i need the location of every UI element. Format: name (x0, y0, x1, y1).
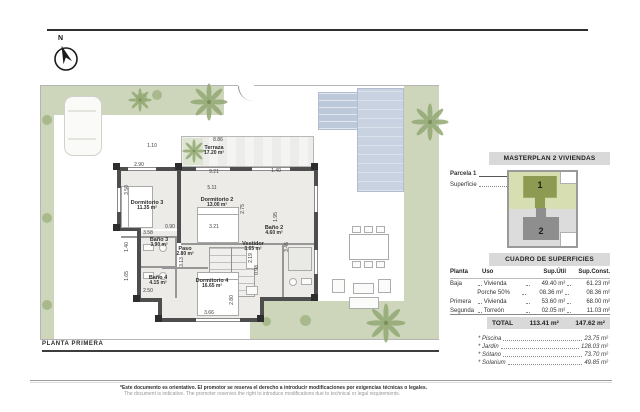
palm-tree-icon (411, 103, 449, 141)
chair (352, 226, 361, 233)
pool (357, 88, 404, 192)
room-label-bano4: Baño 4 4.15 m² (149, 275, 167, 287)
column (113, 224, 120, 231)
dimension-label: 3.66 (204, 310, 214, 316)
chair (364, 226, 373, 233)
siteplan-notch (560, 172, 576, 184)
car (64, 96, 102, 156)
bush-icon (42, 115, 52, 125)
plan-title: PLANTA PRIMERA (42, 341, 103, 347)
dimension-label: 0.98 (254, 265, 260, 275)
table-header-row: Planta Uso Sup.Útil Sup.Const. (450, 269, 610, 275)
dimension-label: 1.95 (273, 212, 279, 222)
armchair (378, 279, 391, 293)
window (314, 186, 318, 212)
sink (301, 278, 312, 285)
footer-divider (30, 380, 612, 381)
siteplan-diagram: 1 2 (507, 170, 578, 248)
palm-tree-icon (366, 303, 406, 343)
extra-row-piscina: * Piscina 23.75 m² (478, 336, 608, 342)
dimension-label: 3.50 (124, 185, 130, 195)
top-border-line (47, 29, 588, 31)
column (311, 163, 318, 170)
dimension-label: 3.13 (179, 257, 185, 267)
extra-row-sotano: * Sótano 73.70 m² (478, 352, 608, 358)
cuadro-header: CUADRO DE SUPERFICIES (489, 253, 610, 266)
table-rule (450, 314, 610, 315)
wall-segment (177, 167, 181, 243)
wall-segment (260, 297, 318, 301)
coffee-table (353, 283, 374, 294)
plan-sheet: N (0, 0, 640, 412)
column (175, 163, 182, 170)
bush-icon (42, 213, 52, 223)
sofa (349, 297, 379, 309)
dimension-label: 5.11 (207, 185, 216, 191)
bush-icon (300, 315, 311, 326)
table-row: Porche 50% 08.36 m² 08.36 m² (450, 290, 610, 296)
dimension-label: 1.65 (124, 271, 130, 281)
dimension-label: 0.90 (165, 224, 175, 230)
dimension-label: 3.45 (284, 242, 290, 252)
dimension-label: 3.58 (143, 230, 153, 236)
column (113, 163, 120, 170)
palm-tree-icon (182, 139, 206, 163)
room-label-bano2: Baño 2 4.60 m² (265, 225, 283, 237)
chair (352, 261, 361, 268)
partition (162, 267, 208, 269)
armchair (332, 279, 345, 293)
extra-row-solarium: * Solarium 49.85 m² (478, 360, 608, 366)
room-label-dormitorio4: Dormitorio 4 16.65 m² (196, 278, 229, 290)
column (311, 294, 318, 301)
total-const: 147.62 m² (575, 320, 605, 327)
superficie-label: Superficie (450, 182, 477, 188)
window (196, 318, 240, 322)
masterplan-header: MASTERPLAN 2 VIVIENDAS (489, 152, 610, 165)
table-row: Primera Vivienda 53.60 m² 68.00 m² (450, 299, 610, 305)
dimension-label: 1.40 (124, 242, 130, 252)
parcela-label: Parcela 1 (450, 171, 476, 177)
column (133, 295, 140, 302)
pool-shallow-end (318, 92, 358, 130)
window (314, 250, 318, 274)
wall-segment (137, 227, 141, 302)
column (155, 315, 162, 322)
chair (364, 261, 373, 268)
room-label-vestidor: Vestidor 3.65 m² (242, 241, 264, 253)
room-label-dormitorio2: Dormitorio 2 13.00 m² (201, 197, 234, 209)
car-windshield (68, 110, 96, 112)
room-label-terraza: Terraza 17.20 m² (204, 145, 224, 157)
plan-title-rule (42, 350, 439, 352)
dining-table (349, 234, 389, 260)
north-label: N (58, 35, 63, 42)
bush-icon (152, 90, 162, 100)
palm-tree-icon (190, 83, 228, 121)
dimension-label: 2.19 (248, 253, 254, 263)
north-arrow-icon (50, 42, 80, 72)
chair (376, 226, 385, 233)
extra-row-jardin: * Jardín 128.03 m² (478, 344, 608, 350)
dimension-label: 2.80 (229, 295, 235, 305)
disclaimer-en: The document is indicative. The promoter… (124, 391, 400, 397)
total-label: TOTAL (492, 320, 513, 327)
shower-tray (288, 247, 312, 271)
room-label-bano3: Baño 3 3.90 m² (150, 237, 168, 249)
dimension-label: 2.75 (240, 204, 246, 214)
dimension-label: 2.50 (143, 288, 153, 294)
room-label-dormitorio3: Dormitorio 3 11.35 m² (131, 200, 164, 212)
wardrobe (246, 286, 258, 295)
siteplan-notch (560, 232, 576, 246)
dimension-label: 8.86 (213, 137, 223, 143)
dimension-label: 1.40 (271, 168, 281, 174)
dimension-label: 2.90 (134, 162, 144, 168)
table-rule (450, 278, 610, 279)
table-total-row: TOTAL 113.41 m² 147.62 m² (487, 317, 610, 329)
total-util: 113.41 m² (530, 320, 559, 327)
car-rear-window (68, 138, 96, 140)
dimension-label: 1.10 (147, 143, 157, 149)
bush-icon (42, 300, 52, 310)
palm-tree-icon (128, 88, 152, 112)
table-row: Baja Vivienda 49.40 m² 61.23 m² (450, 281, 610, 287)
toilet (289, 278, 297, 286)
footer-divider-light (30, 382, 612, 383)
dimension-label: 9.21 (209, 169, 219, 175)
dimension-label: 3.21 (209, 224, 219, 230)
chair (376, 261, 385, 268)
column (257, 315, 264, 322)
